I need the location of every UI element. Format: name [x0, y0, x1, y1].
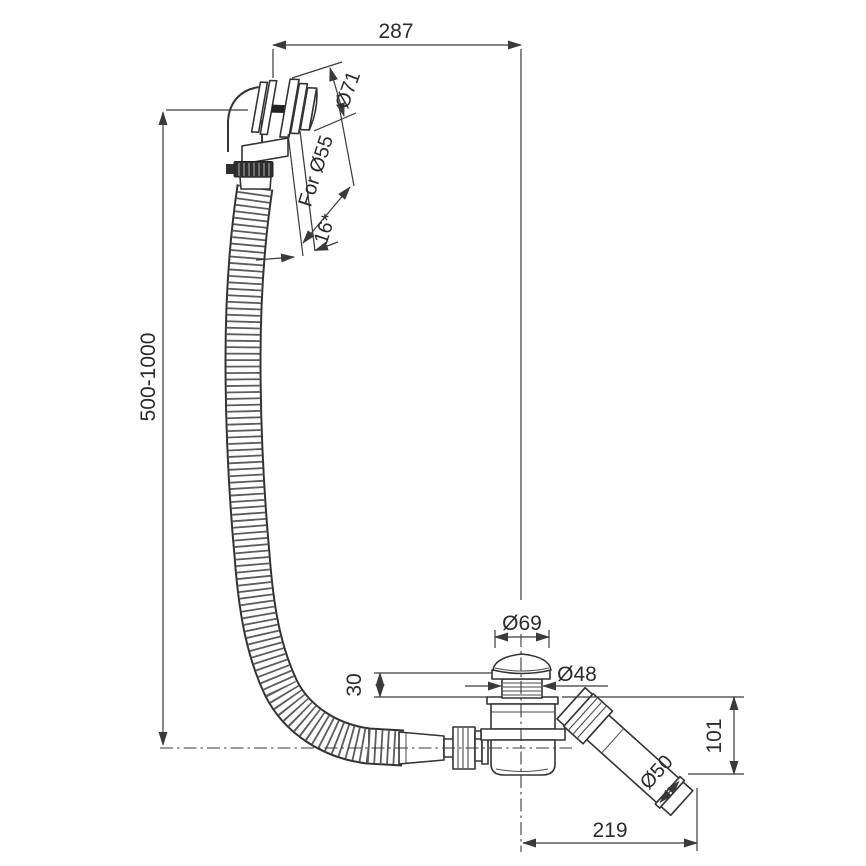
faceplate-screw-shaft: [271, 105, 285, 113]
dim-thread-diameter-label: Ø48: [557, 663, 597, 686]
dim-hole-note-label: For Ø55: [294, 133, 338, 210]
dim-thread-height-label: 30: [343, 673, 366, 696]
drain-upper-body: [491, 704, 555, 729]
extension-line: [292, 62, 342, 78]
dim-angle-note-label: 16*: [310, 211, 340, 247]
corrugated-hose: [243, 187, 403, 748]
dim-outlet-offset-label: 219: [592, 819, 627, 842]
dim-cap-diameter-label: Ø69: [502, 612, 542, 635]
dim-hose-length-label: 500-1000: [137, 333, 160, 422]
drain-kit-drawing: Ø50 287 500-1000 Ø71 For Ø55 16*: [0, 0, 866, 866]
dim-thread-height: 30: [343, 673, 492, 697]
dim-cap-diameter: Ø69: [495, 612, 549, 648]
overflow-faceplate: [251, 78, 321, 138]
drain-flange: [481, 729, 565, 740]
clamp-screw: [226, 164, 234, 174]
hose-clamp-ridges: [239, 163, 269, 176]
dim-face-diameter-label: Ø71: [332, 68, 366, 111]
extension-line: [314, 113, 356, 131]
dim-width-top-label: 287: [378, 20, 413, 43]
drain-flange-tab: [475, 731, 481, 739]
technical-drawing-page: Ø50 287 500-1000 Ø71 For Ø55 16*: [0, 0, 866, 866]
hose-collar: [240, 177, 271, 189]
dim-outlet-height-label: 101: [703, 718, 726, 753]
outlet-pipe: Ø50: [556, 685, 698, 820]
